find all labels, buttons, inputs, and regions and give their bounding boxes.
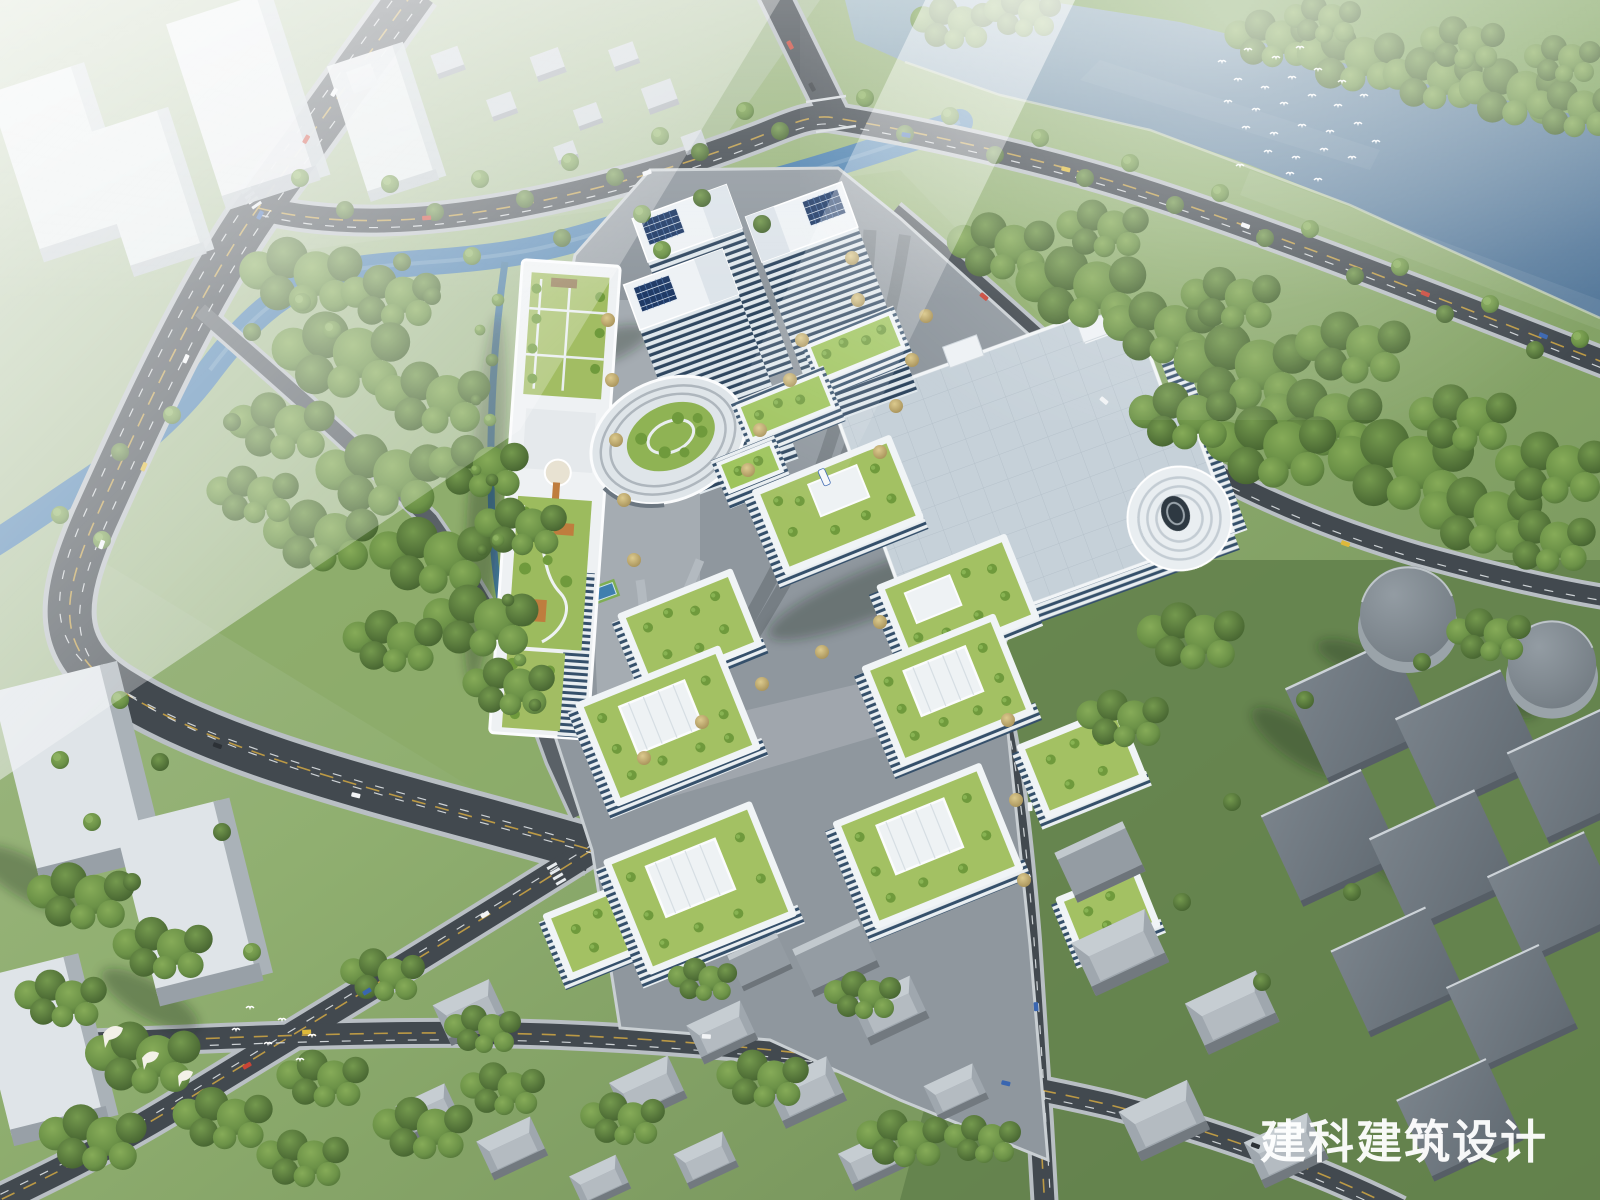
- rendering-canvas: 建科建筑设计: [0, 0, 1600, 1200]
- round-canopy: [544, 459, 572, 487]
- sun-glow: [800, 0, 1600, 420]
- watermark-text: 建科建筑设计: [1260, 1115, 1548, 1169]
- storage-tank-1: [1358, 566, 1458, 673]
- aerial-architectural-rendering: 建科建筑设计: [0, 0, 1600, 1200]
